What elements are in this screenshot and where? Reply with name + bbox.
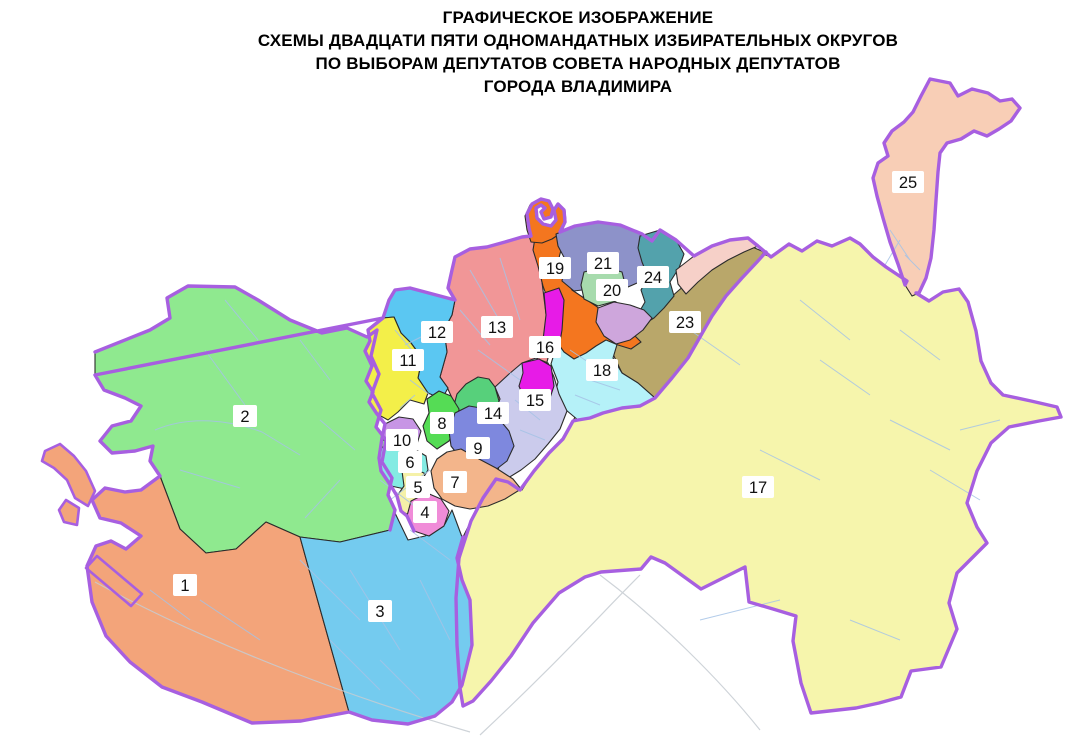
district-label-9: 9 bbox=[466, 437, 490, 459]
district-label-14: 14 bbox=[477, 402, 509, 424]
svg-text:5: 5 bbox=[413, 479, 422, 497]
svg-text:24: 24 bbox=[644, 269, 662, 287]
district-label-4: 4 bbox=[413, 501, 437, 523]
district-label-17: 17 bbox=[742, 476, 774, 498]
svg-text:1: 1 bbox=[180, 577, 189, 595]
svg-text:7: 7 bbox=[450, 474, 459, 492]
svg-text:3: 3 bbox=[375, 603, 384, 621]
svg-text:16: 16 bbox=[536, 339, 554, 357]
district-label-15: 15 bbox=[519, 389, 551, 411]
district-label-11: 11 bbox=[392, 349, 424, 371]
district-label-12: 12 bbox=[421, 321, 453, 343]
svg-text:8: 8 bbox=[437, 415, 446, 433]
svg-text:6: 6 bbox=[405, 454, 414, 472]
svg-text:23: 23 bbox=[676, 314, 694, 332]
district-label-2: 2 bbox=[233, 405, 257, 427]
svg-text:10: 10 bbox=[393, 432, 411, 450]
district-label-20: 20 bbox=[596, 279, 628, 301]
map-svg: 172131312112318192124202515161489710654 bbox=[0, 0, 1089, 741]
district-label-13: 13 bbox=[481, 316, 513, 338]
district-label-6: 6 bbox=[398, 451, 422, 473]
district-label-25: 25 bbox=[892, 171, 924, 193]
svg-text:15: 15 bbox=[526, 392, 544, 410]
district-label-1: 1 bbox=[173, 574, 197, 596]
district-label-8: 8 bbox=[430, 412, 454, 434]
svg-text:9: 9 bbox=[473, 440, 482, 458]
district-label-7: 7 bbox=[443, 471, 467, 493]
svg-text:14: 14 bbox=[484, 405, 502, 423]
svg-text:25: 25 bbox=[899, 174, 917, 192]
page: ГРАФИЧЕСКОЕ ИЗОБРАЖЕНИЕ СХЕМЫ ДВАДЦАТИ П… bbox=[0, 0, 1089, 741]
svg-text:17: 17 bbox=[749, 479, 767, 497]
district-label-5: 5 bbox=[406, 476, 430, 498]
svg-text:19: 19 bbox=[546, 260, 564, 278]
svg-text:11: 11 bbox=[399, 352, 416, 370]
svg-text:21: 21 bbox=[594, 255, 612, 273]
district-label-21: 21 bbox=[587, 252, 619, 274]
district-label-3: 3 bbox=[368, 600, 392, 622]
district-label-10: 10 bbox=[386, 429, 418, 451]
district-label-16: 16 bbox=[529, 336, 561, 358]
svg-text:12: 12 bbox=[428, 324, 446, 342]
svg-text:18: 18 bbox=[593, 362, 611, 380]
district-label-23: 23 bbox=[669, 311, 701, 333]
svg-text:13: 13 bbox=[488, 319, 506, 337]
svg-text:20: 20 bbox=[603, 282, 621, 300]
svg-text:4: 4 bbox=[420, 504, 429, 522]
svg-text:2: 2 bbox=[240, 408, 249, 426]
district-label-18: 18 bbox=[586, 359, 618, 381]
district-label-24: 24 bbox=[637, 266, 669, 288]
district-label-19: 19 bbox=[539, 257, 571, 279]
